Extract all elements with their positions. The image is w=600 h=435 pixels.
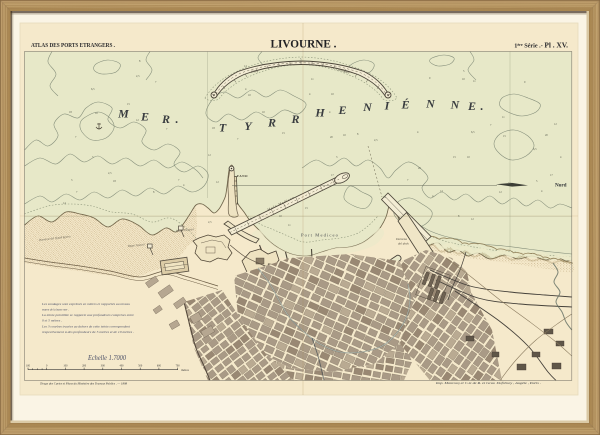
svg-text:R: R bbox=[267, 116, 276, 130]
svg-text:E: E bbox=[140, 110, 149, 124]
svg-text:É: É bbox=[400, 98, 409, 112]
svg-text:Tirage des Cartes et Plans du: Tirage des Cartes et Plans du Ministère … bbox=[40, 382, 128, 386]
svg-text:6,5: 6,5 bbox=[471, 131, 475, 134]
svg-text:LIVOURNE .: LIVOURNE . bbox=[271, 39, 337, 51]
svg-text:100: 100 bbox=[26, 365, 31, 368]
svg-text:R: R bbox=[161, 112, 170, 126]
svg-text:500: 500 bbox=[138, 365, 143, 368]
svg-text:N: N bbox=[425, 97, 436, 111]
svg-text:200: 200 bbox=[82, 365, 87, 368]
svg-text:Les 3 courbes tracées au dehor: Les 3 courbes tracées au dehors de cette… bbox=[41, 324, 131, 328]
svg-text:0 et 5 mètres .: 0 et 5 mètres . bbox=[42, 318, 62, 322]
svg-text:R: R bbox=[290, 112, 299, 126]
svg-text:FANO: FANO bbox=[237, 174, 248, 178]
svg-text:400: 400 bbox=[119, 365, 124, 368]
svg-text:2,5: 2,5 bbox=[208, 221, 212, 224]
svg-text:2,5: 2,5 bbox=[136, 75, 140, 78]
svg-text:600: 600 bbox=[157, 365, 162, 368]
svg-text:700: 700 bbox=[176, 365, 181, 368]
svg-text:del dock: del dock bbox=[398, 242, 409, 246]
svg-text:6,5: 6,5 bbox=[91, 88, 95, 91]
svg-text:T: T bbox=[219, 121, 227, 135]
svg-text:respectivement à des profondeu: respectivement à des profondeurs de 5 mè… bbox=[42, 330, 134, 334]
svg-text:Port Mediceo: Port Mediceo bbox=[301, 233, 339, 238]
svg-text:Nord: Nord bbox=[555, 183, 567, 189]
svg-text:.: . bbox=[481, 99, 484, 113]
svg-text:1ère Série .- Pl . XV.: 1ère Série .- Pl . XV. bbox=[514, 41, 568, 50]
svg-text:mètres: mètres bbox=[181, 368, 190, 372]
svg-text:100: 100 bbox=[63, 365, 68, 368]
svg-text:ATLAS DES PORTS ETRANGERS .: ATLAS DES PORTS ETRANGERS . bbox=[31, 42, 115, 49]
svg-text:H: H bbox=[314, 106, 325, 120]
svg-text:M: M bbox=[117, 107, 129, 121]
svg-text:2,5: 2,5 bbox=[108, 172, 112, 175]
svg-text:Darsena: Darsena bbox=[395, 237, 407, 241]
svg-text:N: N bbox=[450, 98, 461, 112]
svg-text:La teinte pointillée se rappor: La teinte pointillée se rapporte aux pro… bbox=[41, 313, 134, 317]
svg-text:N: N bbox=[362, 100, 373, 114]
svg-text:E: E bbox=[337, 103, 346, 117]
svg-text:300: 300 bbox=[101, 365, 106, 368]
svg-text:2,5: 2,5 bbox=[374, 139, 378, 142]
svg-text:6,5: 6,5 bbox=[533, 148, 537, 151]
svg-text:moyen de la basse mer .: moyen de la basse mer . bbox=[42, 308, 69, 312]
svg-text:Les sondages sont exprimés en: Les sondages sont exprimés en mètres et … bbox=[41, 302, 130, 306]
svg-text:E: E bbox=[467, 99, 476, 113]
svg-text:.: . bbox=[176, 112, 179, 126]
svg-text:Echelle 1.7000: Echelle 1.7000 bbox=[87, 355, 126, 362]
